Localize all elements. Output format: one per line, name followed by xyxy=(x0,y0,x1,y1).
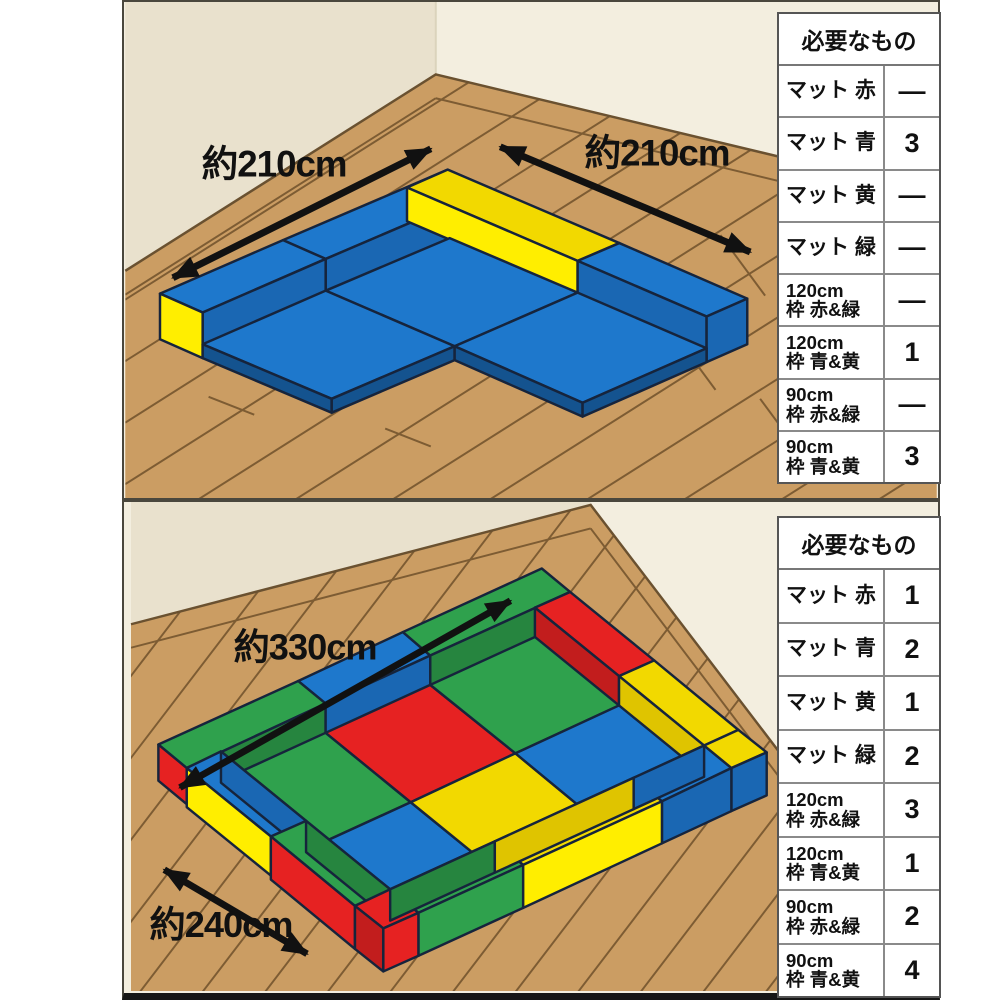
item-label: マット 青 xyxy=(779,132,883,154)
item-label: マット 黄 xyxy=(779,692,883,714)
item-label: マット 赤 xyxy=(779,585,883,607)
item-count: 3 xyxy=(883,118,939,168)
item-label: 120cm 枠 青&黄 xyxy=(779,333,883,372)
dimension-label-right: 約210cm xyxy=(584,133,729,174)
required-items-table: 必要なもの マット 赤1 マット 青2 マット 黄1 マット 緑2 120cm … xyxy=(777,516,941,998)
table-title: 必要なもの xyxy=(779,14,939,66)
item-label: マット 青 xyxy=(779,638,883,660)
item-count: 1 xyxy=(883,327,939,377)
table-row: マット 黄— xyxy=(779,169,939,221)
panel-corner-layout: 約210cm 約210cm 必要なもの マット 赤— マット 青3 マット 黄—… xyxy=(122,0,940,500)
page: 約210cm 約210cm 必要なもの マット 赤— マット 青3 マット 黄—… xyxy=(0,0,1000,1000)
item-count: 3 xyxy=(883,784,939,836)
item-count: — xyxy=(883,380,939,430)
item-count: 1 xyxy=(883,677,939,729)
table-row: 90cm 枠 青&黄4 xyxy=(779,943,939,997)
item-label: 90cm 枠 青&黄 xyxy=(779,951,883,990)
panel-rectangle-layout: 約330cm 約240cm 必要なもの マット 赤1 マット 青2 マット 黄1… xyxy=(122,500,940,1000)
item-label: マット 緑 xyxy=(779,237,883,259)
item-count: — xyxy=(883,275,939,325)
table-row: 120cm 枠 青&黄1 xyxy=(779,325,939,377)
table-row: マット 赤— xyxy=(779,66,939,116)
table-row: マット 青2 xyxy=(779,622,939,676)
dimension-label-top: 約330cm xyxy=(234,626,377,667)
table-title: 必要なもの xyxy=(779,518,939,570)
item-label: マット 黄 xyxy=(779,185,883,207)
table-row: 120cm 枠 赤&緑3 xyxy=(779,782,939,836)
table-row: 90cm 枠 赤&緑— xyxy=(779,378,939,430)
required-items-table: 必要なもの マット 赤— マット 青3 マット 黄— マット 緑— 120cm … xyxy=(777,12,941,484)
item-count: 2 xyxy=(883,624,939,676)
table-row: マット 緑2 xyxy=(779,729,939,783)
table-row: 120cm 枠 青&黄1 xyxy=(779,836,939,890)
table-row: 120cm 枠 赤&緑— xyxy=(779,273,939,325)
item-label: マット 赤 xyxy=(779,80,883,102)
item-label: 120cm 枠 青&黄 xyxy=(779,844,883,883)
item-label: 90cm 枠 赤&緑 xyxy=(779,385,883,424)
table-row: マット 黄1 xyxy=(779,675,939,729)
table-row: マット 赤1 xyxy=(779,570,939,622)
item-label: 120cm 枠 赤&緑 xyxy=(779,281,883,320)
item-count: 3 xyxy=(883,432,939,482)
dimension-label-left: 約210cm xyxy=(202,144,347,185)
item-label: 90cm 枠 青&黄 xyxy=(779,437,883,476)
item-count: — xyxy=(883,171,939,221)
item-label: 120cm 枠 赤&緑 xyxy=(779,790,883,829)
table-row: マット 緑— xyxy=(779,221,939,273)
item-count: 2 xyxy=(883,731,939,783)
item-count: 1 xyxy=(883,838,939,890)
item-label: マット 緑 xyxy=(779,745,883,767)
item-count: 1 xyxy=(883,570,939,622)
item-count: — xyxy=(883,66,939,116)
table-row: 90cm 枠 青&黄3 xyxy=(779,430,939,482)
item-count: 2 xyxy=(883,891,939,943)
item-count: — xyxy=(883,223,939,273)
dimension-label-left: 約240cm xyxy=(150,904,293,945)
item-label: 90cm 枠 赤&緑 xyxy=(779,897,883,936)
item-count: 4 xyxy=(883,945,939,997)
table-row: マット 青3 xyxy=(779,116,939,168)
table-row: 90cm 枠 赤&緑2 xyxy=(779,889,939,943)
